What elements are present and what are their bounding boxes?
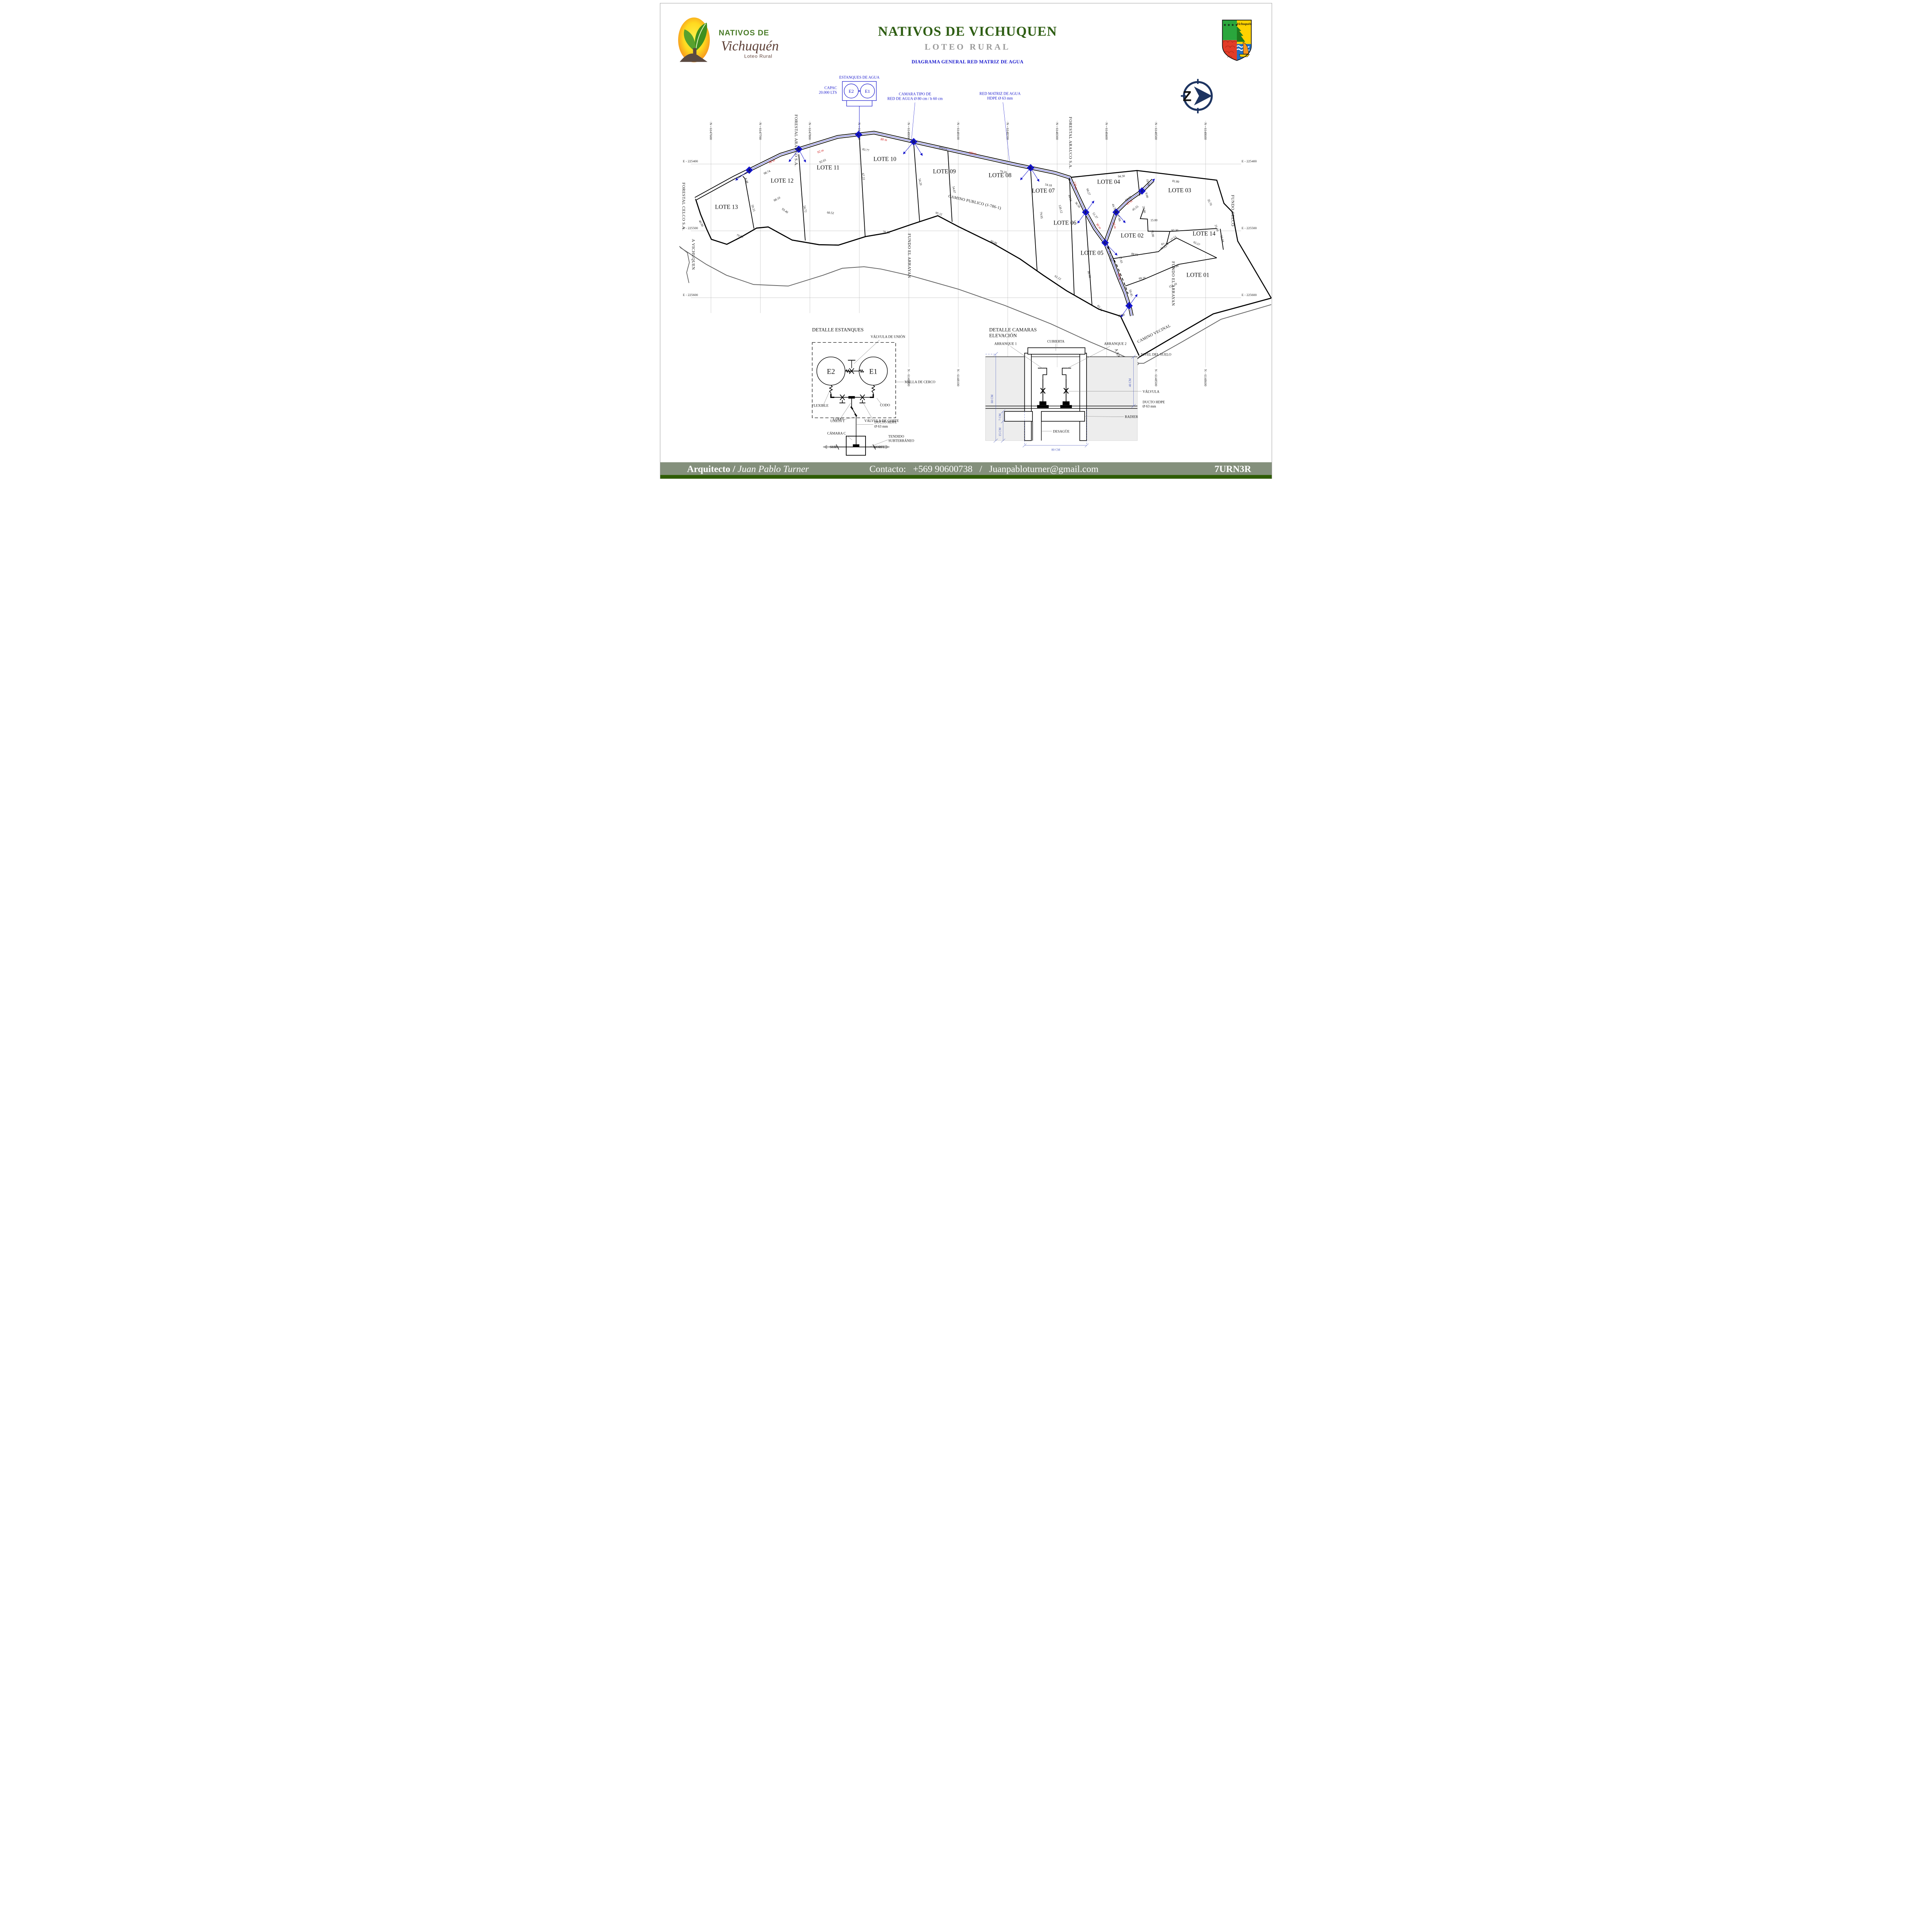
dimension-label: 60 CM	[990, 395, 994, 403]
contact-label: Contacto:	[869, 464, 906, 474]
grid-label-n-top: N - 6148000	[907, 122, 911, 140]
detail-tank-label: VÁLVULA DE UNIÓN	[871, 335, 905, 339]
crest-title: Vichuquén	[1237, 22, 1252, 26]
lot-label: LOTE 05	[1080, 250, 1104, 256]
measurement-label: 59.15	[750, 204, 756, 212]
grid-label-n-top: N - 6148600	[1204, 122, 1207, 140]
detail-chamber-label: ARRANQUE 2	[1104, 342, 1126, 346]
grid-label-n-top: N - 6147600	[709, 122, 713, 140]
measurement-label: 94.30	[1118, 174, 1125, 179]
grid-label-e-left: E - 225400	[683, 159, 698, 163]
road-name-label: CAMINO PUBLICO (J-786-1)	[948, 194, 1002, 211]
camara-tipo-label-2: RED DE AGUA Ø 80 cm / h 60 cm	[887, 97, 942, 101]
site-map: ESTANQUES DE AGUA E2 E1 CAPAC 20.000 LTS…	[679, 75, 1271, 391]
camera-node-letter: F	[1085, 211, 1087, 214]
measurement-label: 54.29	[918, 178, 923, 185]
measurement-label: 51.37	[1092, 212, 1099, 219]
dimension-label: 80 CM	[1051, 448, 1060, 452]
camino-vecinal-road	[1139, 298, 1271, 357]
architect-label: Arquitecto /	[687, 464, 738, 474]
detail-chambers-title-2: ELEVACIÓN	[989, 333, 1017, 338]
grid-label-n-bottom: N - 6148100	[956, 369, 960, 386]
camino-publico-road	[680, 247, 1271, 363]
detail-chamber-label: DESAGÜE	[1053, 430, 1070, 434]
pipe-distance-label: 92 m	[817, 148, 825, 154]
lot-label: LOTE 10	[873, 156, 896, 162]
pipe-distance-label: 80 m	[880, 138, 888, 142]
measurement-label: 35.70	[1207, 199, 1213, 206]
lot-label: LOTE 12	[770, 177, 793, 184]
grid-label-n-top: N - 6147800	[808, 122, 812, 140]
measurement-label: 83.77	[862, 148, 869, 153]
diagram-title: DIAGRAMA GENERAL RED MATRIZ DE AGUA	[912, 59, 1023, 65]
neighbor-label: FUNDO CELCO	[1230, 195, 1235, 226]
detail-tank-label: TENDIDO	[888, 435, 904, 439]
crest: Vichuquén ★ ★ ★ ★	[1223, 20, 1252, 61]
lot-label: LOTE 06	[1053, 219, 1077, 226]
logo: NATIVOS DE Vichuquén Loteo Rural	[678, 17, 779, 62]
logo-text-3: Loteo Rural	[744, 53, 772, 59]
wall-left	[1025, 353, 1032, 440]
red-matriz-label-2: HDPE Ø 63 mm	[987, 97, 1013, 101]
camera-node: D	[910, 138, 917, 145]
page-title: NATIVOS DE VICHUQUEN	[878, 24, 1057, 39]
radier-right	[1041, 412, 1085, 422]
measurement-label: 98.74	[763, 169, 771, 175]
grid-label-e-left: E - 225600	[683, 293, 698, 297]
grid-label-e-right: E - 225400	[1242, 159, 1257, 163]
measurement-label: 120.12	[1058, 204, 1063, 214]
measurement-label: 55.58	[1219, 235, 1225, 243]
node-arrows	[736, 142, 1155, 317]
neighbor-label: FORESTAL CELCO S.A.	[681, 182, 686, 231]
measurement-label: 61.12	[1054, 274, 1062, 281]
lot-label: LOTE 04	[1097, 179, 1120, 185]
footer-strip	[660, 475, 1272, 479]
measurement-label: 93.40	[781, 207, 789, 214]
radier-left	[1005, 412, 1032, 422]
measurement-label: 44.76	[1111, 203, 1117, 211]
detail-camaras: DETALLE CAMARAS ELEVACIÓN	[985, 327, 1171, 451]
neighbor-label: FORESTAL ARAUCO S.A.	[794, 114, 798, 167]
neighbor-label: FUNDO EL ARRAYAN	[907, 233, 912, 278]
measurement-label: 9.00	[1145, 192, 1149, 198]
dimension-label: 40 CM	[1128, 378, 1132, 387]
measurement-label: 60.27	[1085, 188, 1091, 196]
camera-node: E	[1027, 164, 1034, 172]
detail-tank-label: Ø 63 mm	[874, 424, 888, 428]
neighbor-label: FORESTAL ARAUCO S.A.	[1068, 117, 1073, 169]
detail-tanks-title: DETALLE ESTANQUES	[812, 327, 864, 332]
camera-node-letter: A	[748, 168, 751, 172]
dimension-label: 7 CM	[998, 413, 1002, 420]
grid-label-e-right: E - 225600	[1242, 293, 1257, 297]
camera-node-letter: C	[857, 133, 860, 137]
svg-text:Z: Z	[1183, 88, 1192, 104]
header: NATIVOS DE Vichuquén Loteo Rural NATIVOS…	[678, 17, 1252, 113]
neighbor-label: A VICHUQUEN	[691, 239, 696, 270]
distance-labels: 98 m92 m80 m180 m120 m30 m30 m45 m80 m	[768, 138, 1133, 281]
measurement-label: 79.95	[1039, 211, 1043, 219]
detail-tank-label: DUCTO HDPE	[874, 420, 897, 424]
wall-right	[1080, 353, 1087, 440]
grid-label-n-top: N - 6147700	[759, 122, 762, 140]
measurement-label: 97.30	[1171, 228, 1178, 232]
page-border	[660, 3, 1272, 478]
logo-text-1: NATIVOS DE	[719, 29, 769, 37]
capac-label-2: 20.000 LTS	[819, 91, 837, 95]
grid-label-n-top: N - 6148200	[1006, 122, 1010, 140]
lot-label: LOTE 03	[1168, 187, 1191, 194]
detail-chamber-label: Ø 63 mm	[1143, 405, 1156, 408]
measurement-label: 86.90	[1087, 270, 1092, 278]
measurement-label: 44.56	[1068, 194, 1073, 202]
detail-leaders	[824, 340, 904, 447]
tank-e1-label: E1	[865, 88, 870, 94]
grid-label-n-top: N - 6148500	[1154, 122, 1158, 140]
lot-label: LOTE 01	[1186, 272, 1209, 278]
contact-separator: /	[980, 464, 982, 474]
measurement-label: 54.07	[952, 186, 956, 193]
measurement-label: 50.45	[1128, 289, 1134, 297]
measurement-label: 8.48	[744, 177, 749, 184]
camera-node-letter: G	[1104, 241, 1106, 245]
t-union	[849, 396, 855, 398]
north-compass-icon: Z	[1181, 79, 1212, 113]
measurement-label: 69.26	[1139, 276, 1146, 281]
lot-label: LOTE 07	[1032, 187, 1055, 194]
detail-chamber-label: ARRANQUE 1	[994, 342, 1017, 346]
cover-slab	[1028, 348, 1085, 354]
camera-node-letter: H	[1115, 211, 1117, 214]
t-union-2	[853, 444, 859, 447]
measurement-label: 92.03	[819, 158, 827, 164]
measurement-label: 65.57	[1193, 240, 1201, 247]
lot-label: LOTE 14	[1192, 230, 1216, 237]
grid-label-n-top: N - 6148300	[1055, 122, 1059, 140]
measurement-label: 45.55	[1131, 205, 1139, 212]
camera-node-letter: I	[1141, 189, 1143, 193]
water-main	[749, 133, 1142, 316]
logo-text-2: Vichuquén	[721, 38, 779, 53]
measurement-label: 95.12	[935, 211, 943, 216]
measurement-label: 55.00	[1117, 313, 1125, 318]
detail-estanques: DETALLE ESTANQUES E2 E1	[812, 327, 935, 455]
architect-credit: Arquitecto / Juan Pablo Turner	[687, 464, 809, 474]
detail-tank-label: CODO	[880, 403, 890, 407]
grid-label-n-bottom: N - 6148000	[907, 369, 911, 386]
detail-tank-label: MALLA DE CERCO	[905, 380, 935, 384]
a-vichuquen-road	[679, 246, 689, 283]
measurement-label: 15.00	[1150, 219, 1157, 222]
measurement-label: 88.10	[773, 196, 781, 202]
crest-stars: ★ ★ ★ ★	[1223, 23, 1238, 27]
contact-phone: +569 90600738	[913, 464, 973, 474]
dimension-label: 15 CM	[998, 428, 1002, 436]
detail-chamber-label: NIVEL DEL SUELO	[1141, 352, 1171, 356]
camera-node-letter: E	[1029, 166, 1032, 170]
detail-tank-label: CÁMARA C	[827, 432, 846, 435]
detail-tank-label: SUR	[830, 445, 837, 449]
detail-tank-label: NORTE	[874, 445, 885, 449]
detail-e2-label: E2	[827, 367, 835, 376]
grid-label-e-right: E - 225500	[1242, 226, 1257, 230]
page-subtitle: LOTEO RURAL	[925, 42, 1010, 51]
measurement-label: 81.80	[1172, 179, 1179, 184]
detail-tank-label: CODO	[833, 417, 843, 421]
detail-e1-label: E1	[869, 367, 877, 376]
sheet: NATIVOS DE Vichuquén Loteo Rural NATIVOS…	[657, 0, 1275, 481]
contact-email: Juanpabloturner@gmail.com	[989, 464, 1099, 474]
grid-label-n-bottom: N - 6148500	[1154, 369, 1158, 386]
detail-chambers-title-1: DETALLE CAMARAS	[989, 327, 1037, 332]
camera-node-letter: J	[1128, 304, 1130, 308]
plan-canvas: NATIVOS DE Vichuquén Loteo Rural NATIVOS…	[657, 0, 1275, 481]
measurement-label: 27.51	[1170, 235, 1177, 242]
lot-label: LOTE 11	[817, 164, 840, 171]
grid-label-n-top: N - 6148100	[956, 122, 960, 140]
grid-label-n-bottom: N - 6148600	[1204, 369, 1207, 386]
architect-name: Juan Pablo Turner	[738, 464, 809, 474]
detail-chamber-label: VÁLVULA	[1143, 390, 1160, 394]
detail-chamber-label: DUCTO HDPE	[1143, 400, 1165, 404]
camera-node-letter: D	[912, 140, 915, 144]
lot-label: LOTE 09	[933, 168, 956, 175]
crest-hull-icon	[1239, 54, 1250, 57]
tank-assembly: ESTANQUES DE AGUA E2 E1 CAPAC 20.000 LTS	[819, 75, 880, 134]
grid-label-n-top: N - 6148400	[1105, 122, 1109, 140]
lot-label: LOTE 13	[715, 204, 738, 210]
neighbor-labels: FORESTAL CELCO S.A.FORESTAL ARAUCO S.A.F…	[681, 114, 1235, 306]
red-matriz-label-1: RED MATRIZ DE AGUA	[980, 92, 1021, 96]
road-band	[696, 133, 1153, 316]
detail-chamber-label: RADIER	[1125, 415, 1138, 419]
detail-tank-label: FLEXIBLE	[812, 404, 829, 408]
footer: Arquitecto / Juan Pablo Turner Contacto:…	[660, 462, 1272, 478]
lot-label: LOTE 02	[1121, 232, 1143, 239]
tank-e2-label: E2	[849, 88, 854, 94]
detail-chamber-label: CUBIERTA	[1047, 340, 1065, 344]
measurement-label: 54.18	[1045, 183, 1052, 187]
estanques-label: ESTANQUES DE AGUA	[839, 75, 880, 80]
sheet-code: 7URN3R	[1214, 464, 1251, 474]
capac-label-1: CAPAC	[825, 86, 837, 90]
soil-right	[1087, 357, 1137, 440]
measurement-label: 60.52	[827, 211, 834, 215]
camara-tipo-label-1: CAMARA TIPO DE	[899, 92, 931, 96]
detail-tank-label: SUBTERRÁNEO	[888, 439, 914, 443]
